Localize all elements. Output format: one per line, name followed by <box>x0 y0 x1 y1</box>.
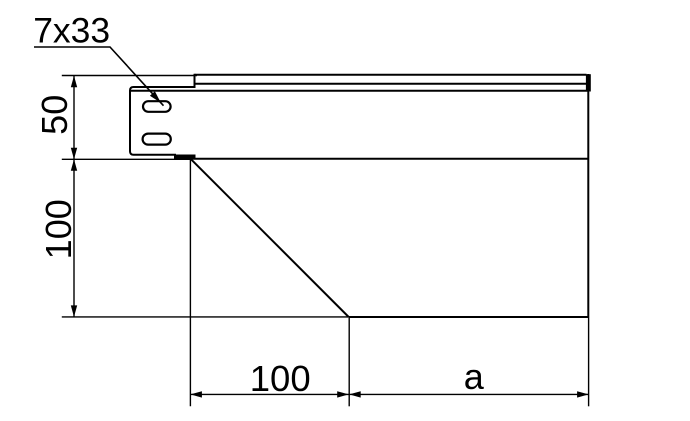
svg-text:7x33: 7x33 <box>33 11 110 51</box>
svg-text:a: a <box>464 356 485 397</box>
svg-text:100: 100 <box>250 358 311 399</box>
svg-text:50: 50 <box>34 95 75 135</box>
svg-text:100: 100 <box>38 199 79 259</box>
